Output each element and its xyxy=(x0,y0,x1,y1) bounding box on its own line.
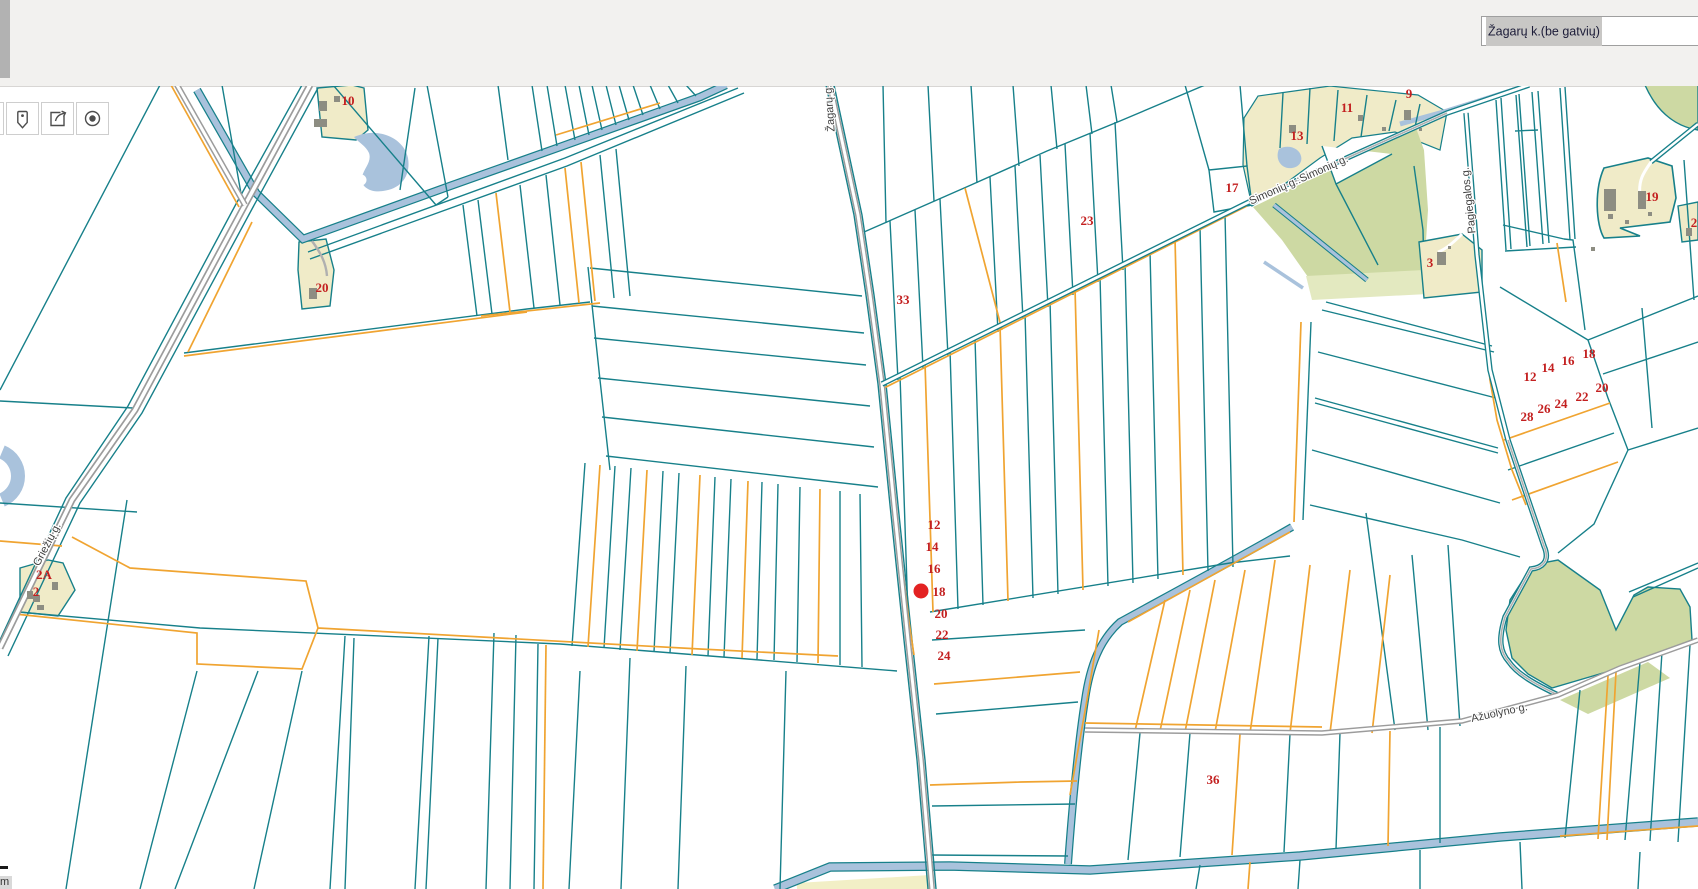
svg-text:3: 3 xyxy=(1427,255,1434,270)
svg-text:20: 20 xyxy=(1596,380,1609,395)
svg-text:19: 19 xyxy=(1646,189,1660,204)
svg-text:13: 13 xyxy=(1291,128,1305,143)
svg-text:24: 24 xyxy=(938,648,952,663)
svg-text:16: 16 xyxy=(928,561,942,576)
svg-text:14: 14 xyxy=(1542,360,1556,375)
svg-text:16: 16 xyxy=(1562,353,1576,368)
svg-text:22: 22 xyxy=(936,627,949,642)
svg-text:18: 18 xyxy=(933,584,947,599)
svg-text:10: 10 xyxy=(342,93,355,108)
svg-text:2: 2 xyxy=(33,584,40,599)
svg-text:26: 26 xyxy=(1538,401,1552,416)
svg-text:24: 24 xyxy=(1555,396,1569,411)
svg-text:18: 18 xyxy=(1583,346,1597,361)
svg-text:14: 14 xyxy=(926,539,940,554)
svg-text:11: 11 xyxy=(1341,100,1353,115)
svg-text:12: 12 xyxy=(928,517,941,532)
svg-text:17: 17 xyxy=(1226,180,1240,195)
svg-text:22: 22 xyxy=(1576,389,1589,404)
svg-text:12: 12 xyxy=(1524,369,1537,384)
svg-text:9: 9 xyxy=(1406,86,1413,101)
svg-text:Pagiegalos g.: Pagiegalos g. xyxy=(1460,167,1479,235)
svg-text:2A: 2A xyxy=(36,567,53,582)
svg-text:Ažuolyno g.: Ažuolyno g. xyxy=(1470,701,1529,725)
svg-text:2: 2 xyxy=(1691,215,1698,230)
svg-text:28: 28 xyxy=(1521,409,1535,424)
svg-text:20: 20 xyxy=(316,280,329,295)
svg-text:20: 20 xyxy=(935,606,948,621)
svg-text:36: 36 xyxy=(1207,772,1221,787)
svg-text:23: 23 xyxy=(1081,213,1095,228)
svg-text:33: 33 xyxy=(897,292,911,307)
